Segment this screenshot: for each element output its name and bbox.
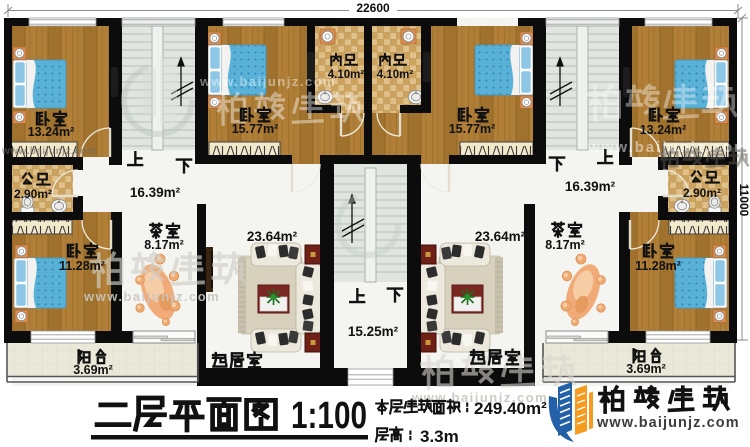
svg-text:13.24m²: 13.24m² — [640, 123, 687, 137]
svg-text:15.77m²: 15.77m² — [232, 122, 279, 136]
svg-text:11000: 11000 — [737, 184, 750, 217]
svg-text:2.90m²: 2.90m² — [683, 186, 721, 200]
svg-text:13.24m²: 13.24m² — [28, 125, 75, 139]
svg-text:3.3m: 3.3m — [420, 427, 459, 446]
svg-text:www.baijunjz.com: www.baijunjz.com — [596, 415, 740, 431]
svg-text:16.39m²: 16.39m² — [565, 179, 616, 194]
svg-text:4.10m²: 4.10m² — [377, 69, 414, 81]
svg-text:8.17m²: 8.17m² — [545, 238, 585, 252]
svg-text:22600: 22600 — [356, 1, 390, 15]
svg-text:www.baijunjz.com: www.baijunjz.com — [83, 289, 220, 304]
svg-text:3.69m²: 3.69m² — [626, 362, 666, 376]
svg-text:www.baijunjz.com: www.baijunjz.com — [199, 74, 336, 89]
svg-text:www.baijunjz.com: www.baijunjz.com — [1, 146, 96, 157]
svg-text:4.10m²: 4.10m² — [328, 69, 365, 81]
svg-text:2.90m²: 2.90m² — [14, 187, 52, 201]
svg-text:15.25m²: 15.25m² — [348, 324, 399, 339]
svg-text:3.69m²: 3.69m² — [73, 363, 113, 377]
svg-text:11.28m²: 11.28m² — [635, 259, 681, 273]
svg-text:16.39m²: 16.39m² — [130, 185, 181, 200]
svg-text:11.28m²: 11.28m² — [59, 259, 105, 273]
svg-text:23.64m²: 23.64m² — [247, 229, 298, 244]
svg-text:249.40m²: 249.40m² — [474, 399, 547, 418]
svg-text:23.64m²: 23.64m² — [475, 229, 526, 244]
svg-text:1:100: 1:100 — [291, 395, 367, 437]
svg-text:8.17m²: 8.17m² — [144, 238, 184, 252]
svg-text:15.77m²: 15.77m² — [449, 122, 496, 136]
